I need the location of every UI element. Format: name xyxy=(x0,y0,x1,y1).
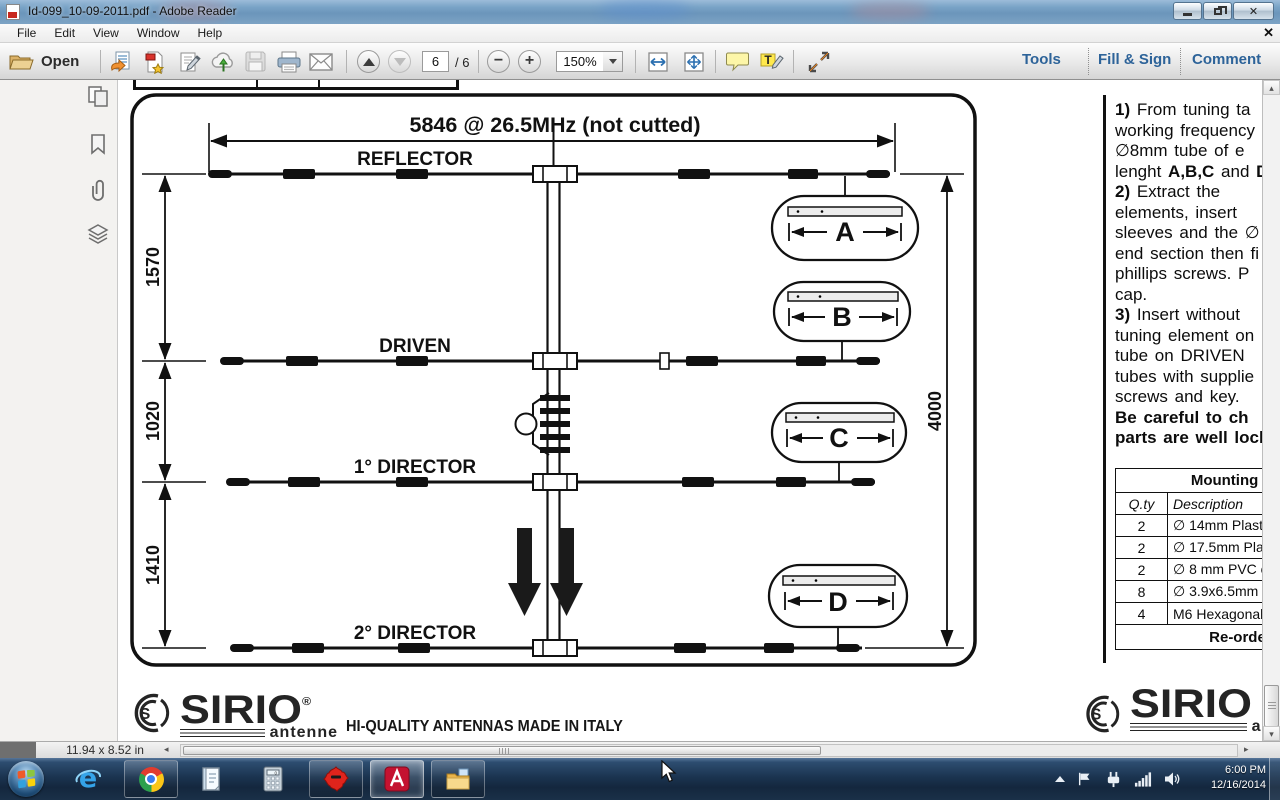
start-button[interactable] xyxy=(8,761,44,797)
callout-d: D xyxy=(769,565,907,648)
page-thumbnails-button[interactable] xyxy=(86,84,110,108)
boom-mast xyxy=(548,120,560,652)
clock-time: 6:00 PM xyxy=(1186,763,1266,778)
calculator-glyph: 0 xyxy=(261,765,285,793)
callout-b-label: B xyxy=(832,302,852,332)
toolbar-separator xyxy=(100,50,101,73)
mounting-elements-table: Mounting Elements Q.ty Description 2∅ 14… xyxy=(1115,468,1262,650)
table-footer-row: Re-order code xyxy=(1116,625,1263,650)
layers-button[interactable] xyxy=(86,222,110,246)
network-signal-icon[interactable] xyxy=(1134,771,1152,787)
close-icon: ✕ xyxy=(1249,5,1258,18)
reflector-element xyxy=(208,166,890,182)
fill-sign-panel-button[interactable]: Fill & Sign xyxy=(1098,51,1171,68)
brand-tagline: HI-QUALITY ANTENNAS MADE IN ITALY xyxy=(346,718,623,736)
irfanview-cat-icon[interactable] xyxy=(321,764,351,794)
instruction-line: tube on DRIVEN xyxy=(1115,346,1262,367)
matching-unit xyxy=(516,393,571,455)
callout-a-label: A xyxy=(835,217,855,247)
driven-element xyxy=(220,353,880,369)
instructions-text: 1) From tuning taworking frequency∅8mm t… xyxy=(1115,100,1262,449)
attachments-button[interactable] xyxy=(86,178,110,202)
action-center-flag-icon[interactable] xyxy=(1077,771,1093,787)
taskbar: e 0 xyxy=(0,758,1280,800)
fit-page-icon xyxy=(682,51,706,73)
fullscreen-mode-button[interactable] xyxy=(806,49,832,74)
vertical-scrollbar-thumb[interactable] xyxy=(1264,685,1279,727)
horizontal-scrollbar[interactable] xyxy=(180,744,1238,757)
restore-button[interactable] xyxy=(1203,2,1232,20)
instruction-line: end section then fi xyxy=(1115,244,1262,265)
folder-glyph xyxy=(444,766,472,792)
toolbar-separator xyxy=(346,50,347,73)
menu-bar-items: FileEditViewWindowHelp xyxy=(8,24,231,42)
toolbar-separator xyxy=(478,50,479,73)
system-tray xyxy=(1055,758,1180,800)
qty-header: Q.ty xyxy=(1116,493,1168,515)
tools-panel-button[interactable]: Tools xyxy=(1022,51,1061,68)
registered-mark: ® xyxy=(302,696,311,708)
bookmarks-button[interactable] xyxy=(86,132,110,156)
sirio-wordmark: SIRIO antenne xyxy=(1130,686,1262,736)
instruction-line: working frequency xyxy=(1115,121,1262,142)
instruction-line: 3) Insert without xyxy=(1115,305,1262,326)
callout-a: A xyxy=(772,176,918,260)
fit-width-icon xyxy=(646,51,670,73)
instruction-line: tuning element on xyxy=(1115,326,1262,347)
document-background-corner xyxy=(0,742,36,758)
fit-page-button[interactable] xyxy=(681,49,707,74)
adobe-reader-icon[interactable] xyxy=(382,764,412,794)
minus-icon: − xyxy=(494,52,503,70)
send-file-icon xyxy=(109,50,133,74)
sirio-wordmark: SIRIO® antenne xyxy=(180,684,338,741)
menu-bar: FileEditViewWindowHelp xyxy=(0,24,1280,43)
instruction-line: phillips screws. P xyxy=(1115,264,1262,285)
dim-1410-label: 1410 xyxy=(143,545,163,585)
power-plug-icon[interactable] xyxy=(1105,771,1122,788)
director2-label: 2° DIRECTOR xyxy=(354,623,477,644)
chrome-icon[interactable] xyxy=(136,764,166,794)
pdf-page: 5846 @ 26.5MHz (not cutted) REFLECTOR DR… xyxy=(118,80,1262,741)
zoom-level-input[interactable]: 150% xyxy=(556,51,604,72)
table-row: 4M6 Hexagonal n xyxy=(1116,603,1263,625)
driven-label: DRIVEN xyxy=(379,336,451,357)
page-thumbnails-icon xyxy=(86,84,110,108)
toolbar-separator xyxy=(793,50,794,73)
open-folder-icon xyxy=(8,52,34,72)
table-divider-tick xyxy=(318,80,320,88)
director1-element xyxy=(226,474,875,490)
toolbar: Open xyxy=(0,43,1280,80)
menu-item-window[interactable]: Window xyxy=(128,24,189,42)
comment-tool-button[interactable] xyxy=(724,49,750,74)
menu-item-file[interactable]: File xyxy=(8,24,45,42)
description-header: Description xyxy=(1168,493,1263,515)
table-row: 2∅ 17.5mm Plast xyxy=(1116,537,1263,559)
highlight-text-icon: T xyxy=(759,50,784,73)
create-pdf-icon xyxy=(143,50,167,74)
antenna-diagram: 5846 @ 26.5MHz (not cutted) REFLECTOR DR… xyxy=(128,92,978,674)
mouse-cursor xyxy=(660,760,680,784)
layers-icon xyxy=(86,222,110,246)
taskbar-clock[interactable]: 6:00 PM 12/16/2014 xyxy=(1186,763,1266,793)
toolbar-separator xyxy=(635,50,636,73)
vertical-scrollbar[interactable]: ▴ ▾ xyxy=(1262,80,1280,741)
instruction-line: cap. xyxy=(1115,285,1262,306)
print-icon xyxy=(276,50,302,74)
toolbar-separator xyxy=(1180,48,1181,75)
pdf-file-icon xyxy=(6,4,20,20)
svg-text:T: T xyxy=(764,53,772,67)
plus-icon: + xyxy=(525,52,534,70)
instruction-line: 1) From tuning ta xyxy=(1115,100,1262,121)
toolbar-separator xyxy=(1088,48,1089,75)
director2-element xyxy=(230,640,862,656)
volume-icon[interactable] xyxy=(1164,771,1180,787)
svg-text:S: S xyxy=(1091,707,1101,724)
create-pdf-button[interactable] xyxy=(142,49,168,74)
windows-explorer-icon[interactable] xyxy=(443,764,473,794)
instruction-line: 2) Extract the xyxy=(1115,182,1262,203)
cloud-upload-button[interactable] xyxy=(210,49,236,74)
callout-c: C xyxy=(772,403,906,482)
table-divider-tick xyxy=(256,80,258,88)
minimize-button[interactable] xyxy=(1173,2,1202,20)
down-direction-arrows xyxy=(508,528,583,616)
menu-item-view[interactable]: View xyxy=(84,24,128,42)
horizontal-scrollbar-thumb[interactable] xyxy=(183,746,821,755)
scroll-down-button[interactable]: ▾ xyxy=(1263,726,1280,741)
up-arrow-icon xyxy=(363,58,375,66)
internet-explorer-icon[interactable]: e xyxy=(73,764,103,794)
clock-date: 12/16/2014 xyxy=(1186,778,1266,793)
instruction-line: lenght A,B,C and D xyxy=(1115,162,1262,183)
zoom-in-button[interactable]: + xyxy=(518,50,541,73)
table-header-row: Q.ty Description xyxy=(1116,493,1263,515)
sign-document-button[interactable] xyxy=(176,49,202,74)
speech-bubble-icon xyxy=(725,51,750,73)
save-icon xyxy=(244,50,267,73)
callout-d-label: D xyxy=(828,587,848,617)
callout-c-label: C xyxy=(829,423,849,453)
close-button[interactable]: ✕ xyxy=(1233,2,1274,20)
table-title: Mounting Elements xyxy=(1116,469,1263,493)
callout-b: B xyxy=(774,282,910,361)
screen: Id-099_10-09-2011.pdf - Adobe Reader ✕ F… xyxy=(0,0,1280,800)
previous-page-button[interactable] xyxy=(357,50,380,73)
instruction-line: parts are well lock xyxy=(1115,428,1262,449)
open-label: Open xyxy=(41,53,79,70)
paperclip-icon xyxy=(86,178,110,202)
windows-logo-icon xyxy=(17,770,36,789)
down-arrow-icon xyxy=(394,58,406,66)
instruction-line: ∅8mm tube of e xyxy=(1115,141,1262,162)
scroll-right-button[interactable]: ▸ xyxy=(1244,744,1249,755)
document-area: 5846 @ 26.5MHz (not cutted) REFLECTOR DR… xyxy=(0,80,1280,741)
save-button[interactable] xyxy=(242,49,268,74)
sirio-circle-logo: S xyxy=(128,692,170,734)
send-file-button[interactable] xyxy=(108,49,134,74)
right-panel-border xyxy=(1103,95,1106,663)
zoom-dropdown-button[interactable] xyxy=(603,51,623,72)
reflector-label: REFLECTOR xyxy=(357,149,473,170)
scroll-left-button[interactable]: ◂ xyxy=(164,744,169,755)
mounting-table-body: 2∅ 14mm Plastic2∅ 17.5mm Plast2∅ 8 mm PV… xyxy=(1116,515,1263,625)
instruction-line: screws and key. xyxy=(1115,387,1262,408)
director1-label: 1° DIRECTOR xyxy=(354,457,477,478)
instruction-line: elements, insert xyxy=(1115,203,1262,224)
fit-width-button[interactable] xyxy=(645,49,671,74)
table-title-row: Mounting Elements xyxy=(1116,469,1263,493)
close-document-button[interactable]: ✕ xyxy=(1263,25,1274,41)
ie-ring xyxy=(73,764,103,794)
show-hidden-icons-button[interactable] xyxy=(1055,776,1065,782)
red-cat-glyph xyxy=(322,765,350,793)
toolbar-separator xyxy=(715,50,716,73)
sirio-circle-logo: S xyxy=(1080,694,1120,734)
instruction-line: sleeves and the ∅ xyxy=(1115,223,1262,244)
email-button[interactable] xyxy=(308,49,334,74)
instruction-line: tubes with supplie xyxy=(1115,367,1262,388)
notepad-glyph xyxy=(198,765,224,793)
table-row: 8∅ 3.9x6.5mm p xyxy=(1116,581,1263,603)
show-desktop-button[interactable] xyxy=(1269,758,1280,800)
menu-item-help[interactable]: Help xyxy=(189,24,232,42)
reorder-code-label: Re-order code xyxy=(1116,625,1263,650)
aero-glass-smudge xyxy=(850,2,930,20)
dim-1020-label: 1020 xyxy=(143,401,163,441)
notepad-icon[interactable] xyxy=(196,764,226,794)
page-total-label: / 6 xyxy=(455,55,469,70)
print-button[interactable] xyxy=(276,49,302,74)
table-row: 2∅ 14mm Plastic xyxy=(1116,515,1263,537)
antenne-label: antenne xyxy=(1252,718,1262,736)
comment-panel-button[interactable]: Comment xyxy=(1192,51,1261,68)
instruction-line: Be careful to ch xyxy=(1115,408,1262,429)
connector-circle xyxy=(516,414,537,435)
navigation-pane-strip xyxy=(0,80,118,741)
restore-icon xyxy=(1214,8,1222,15)
adobe-reader-glyph xyxy=(384,766,410,792)
open-button[interactable]: Open xyxy=(8,48,79,75)
svg-text:S: S xyxy=(140,706,151,723)
window-title: Id-099_10-09-2011.pdf - Adobe Reader xyxy=(28,4,237,18)
sign-document-icon xyxy=(177,50,201,74)
highlight-text-button[interactable]: T xyxy=(758,49,784,74)
page-number-input[interactable]: 6 xyxy=(422,51,449,72)
email-icon xyxy=(308,52,334,72)
bookmark-icon xyxy=(86,132,110,156)
dim-4000-label: 4000 xyxy=(925,391,945,431)
page-size-label: 11.94 x 8.52 in xyxy=(50,743,160,757)
window-controls: ✕ xyxy=(1173,2,1274,20)
title-bar: Id-099_10-09-2011.pdf - Adobe Reader ✕ xyxy=(0,0,1280,24)
aero-glass-smudge xyxy=(600,0,690,20)
status-bar: 11.94 x 8.52 in ◂ ▸ xyxy=(0,741,1280,758)
dim-1570-label: 1570 xyxy=(143,247,163,287)
zoom-out-button[interactable]: − xyxy=(487,50,510,73)
menu-item-edit[interactable]: Edit xyxy=(45,24,84,42)
clipped-table-above xyxy=(133,80,459,90)
next-page-button[interactable] xyxy=(388,50,411,73)
chevron-down-icon xyxy=(609,59,617,64)
cloud-upload-icon xyxy=(210,50,236,74)
table-row: 2∅ 8 mm PVC ca xyxy=(1116,559,1263,581)
expand-arrows-icon xyxy=(807,50,831,74)
top-dimension-label: 5846 @ 26.5MHz (not cutted) xyxy=(410,113,701,137)
minimize-icon xyxy=(1183,13,1192,16)
calculator-icon[interactable]: 0 xyxy=(258,764,288,794)
scroll-up-button[interactable]: ▴ xyxy=(1263,80,1280,95)
